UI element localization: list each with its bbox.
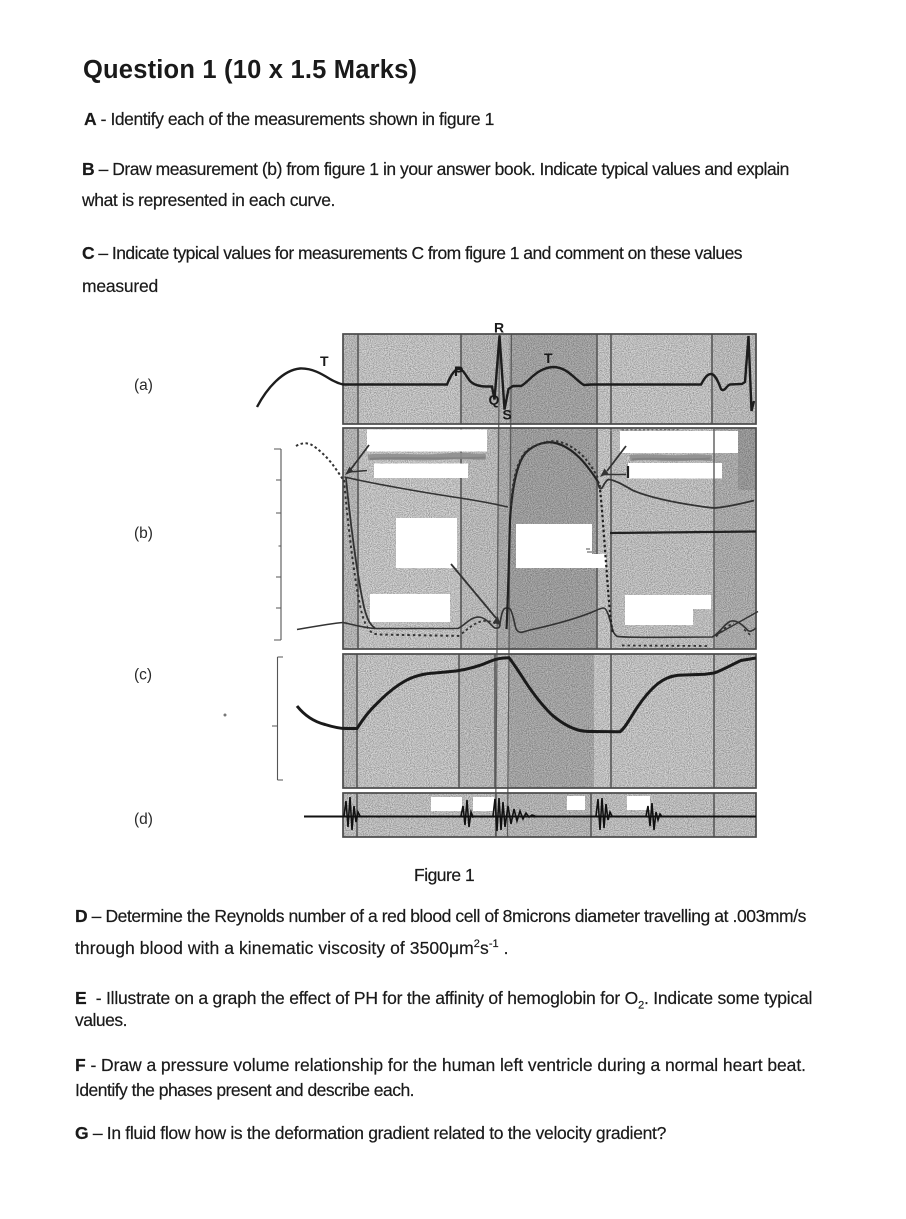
svg-text:T: T: [544, 350, 553, 366]
svg-text:S: S: [503, 407, 512, 423]
svg-text:Q: Q: [489, 392, 500, 408]
svg-text:(c): (c): [134, 667, 152, 684]
svg-text:(b): (b): [134, 525, 153, 542]
svg-text:(d): (d): [134, 811, 153, 828]
svg-text:R: R: [494, 320, 504, 336]
svg-text:P: P: [454, 363, 463, 379]
svg-text:(a): (a): [134, 377, 153, 394]
svg-text:T: T: [320, 353, 329, 369]
